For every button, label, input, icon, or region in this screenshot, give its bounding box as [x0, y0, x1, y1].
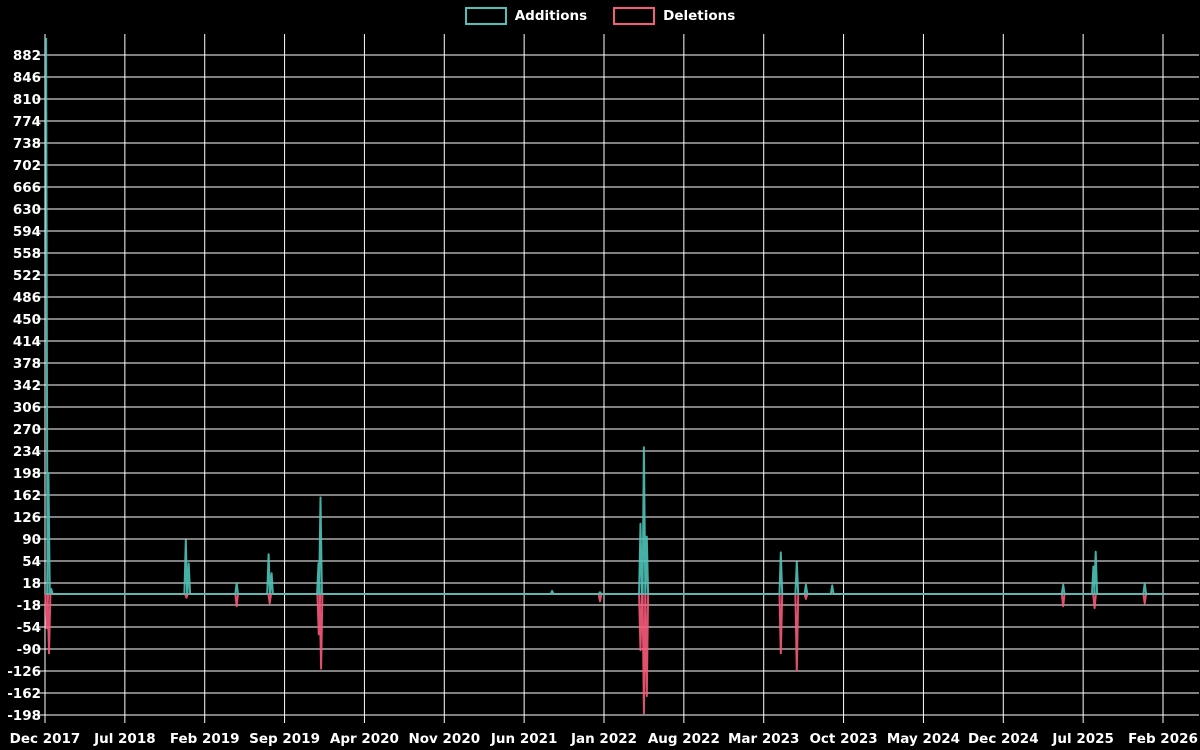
svg-text:May 2024: May 2024 [887, 731, 960, 747]
svg-text:126: 126 [13, 510, 41, 526]
svg-text:378: 378 [13, 356, 41, 372]
svg-text:198: 198 [13, 466, 41, 482]
svg-text:54: 54 [22, 554, 41, 570]
svg-text:810: 810 [13, 92, 41, 108]
svg-text:18: 18 [22, 576, 41, 592]
svg-text:Feb 2019: Feb 2019 [170, 731, 240, 747]
svg-text:Aug 2022: Aug 2022 [648, 731, 720, 747]
svg-text:522: 522 [13, 268, 41, 284]
svg-text:414: 414 [13, 334, 41, 350]
svg-text:Mar 2023: Mar 2023 [728, 731, 799, 747]
chart-legend: Additions Deletions [0, 7, 1200, 25]
legend-item-additions[interactable]: Additions [465, 7, 587, 25]
chart-plot-area: -198-162-126-90-54-181854901261621982342… [0, 0, 1200, 750]
svg-text:666: 666 [13, 180, 41, 196]
svg-text:-162: -162 [7, 686, 41, 702]
svg-text:702: 702 [13, 158, 41, 174]
svg-text:270: 270 [13, 422, 41, 438]
svg-text:Jul 2025: Jul 2025 [1051, 731, 1114, 747]
svg-text:Jul 2018: Jul 2018 [93, 731, 156, 747]
svg-text:558: 558 [13, 246, 41, 262]
svg-text:90: 90 [22, 532, 41, 548]
svg-text:Apr 2020: Apr 2020 [330, 731, 399, 747]
svg-text:882: 882 [13, 48, 41, 64]
svg-text:Nov 2020: Nov 2020 [408, 731, 480, 747]
svg-text:Sep 2019: Sep 2019 [249, 731, 320, 747]
additions-swatch-icon [465, 7, 507, 25]
svg-text:Dec 2024: Dec 2024 [968, 731, 1039, 747]
deletions-swatch-icon [613, 7, 655, 25]
svg-text:Feb 2026: Feb 2026 [1128, 731, 1198, 747]
svg-text:630: 630 [13, 202, 41, 218]
svg-text:Jan 2022: Jan 2022 [570, 731, 637, 747]
svg-text:306: 306 [13, 400, 41, 416]
svg-text:-198: -198 [7, 708, 41, 724]
svg-text:-126: -126 [7, 664, 41, 680]
legend-item-deletions[interactable]: Deletions [613, 7, 735, 25]
svg-text:Jun 2021: Jun 2021 [490, 731, 558, 747]
svg-text:846: 846 [13, 70, 41, 86]
svg-text:162: 162 [13, 488, 41, 504]
legend-label-deletions: Deletions [663, 8, 735, 24]
svg-text:Oct 2023: Oct 2023 [809, 731, 877, 747]
svg-text:774: 774 [13, 114, 41, 130]
svg-text:450: 450 [13, 312, 41, 328]
commit-frequency-chart: -198-162-126-90-54-181854901261621982342… [0, 0, 1200, 750]
svg-text:Dec 2017: Dec 2017 [10, 731, 81, 747]
svg-text:234: 234 [13, 444, 41, 460]
legend-label-additions: Additions [515, 8, 587, 24]
svg-text:738: 738 [13, 136, 41, 152]
svg-text:342: 342 [13, 378, 41, 394]
svg-text:-90: -90 [17, 642, 41, 658]
svg-text:486: 486 [13, 290, 41, 306]
svg-text:-54: -54 [17, 620, 41, 636]
svg-text:594: 594 [13, 224, 41, 240]
svg-text:-18: -18 [17, 598, 41, 614]
